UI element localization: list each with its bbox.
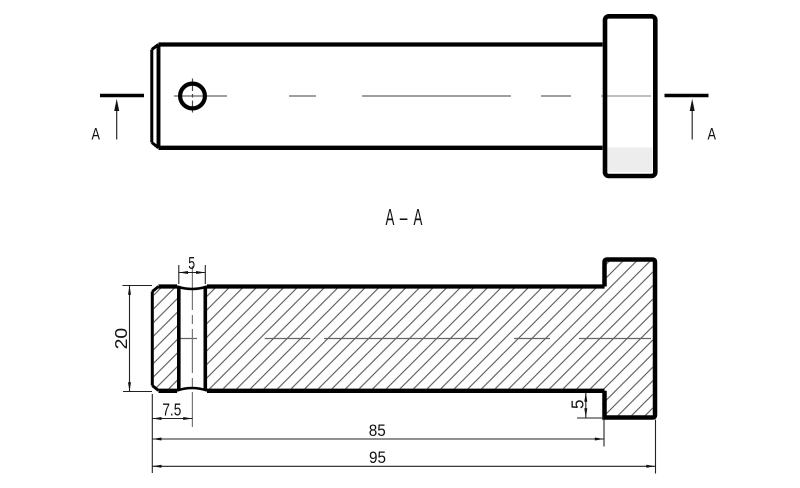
svg-text:A: A: [91, 125, 99, 144]
svg-text:20: 20: [111, 328, 131, 350]
svg-text:5: 5: [567, 399, 588, 409]
svg-text:5: 5: [188, 254, 195, 274]
svg-text:85: 85: [369, 421, 386, 440]
svg-text:A: A: [413, 204, 422, 230]
svg-text:95: 95: [369, 448, 386, 467]
svg-text:A: A: [707, 125, 715, 144]
svg-text:A: A: [385, 204, 394, 230]
svg-text:7.5: 7.5: [162, 401, 181, 420]
svg-text:–: –: [400, 206, 408, 231]
